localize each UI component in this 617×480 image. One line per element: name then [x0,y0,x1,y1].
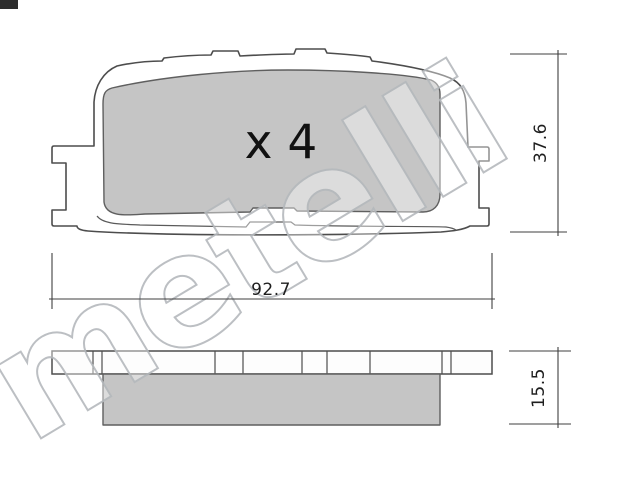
height-dimension-label: 37.6 [531,123,551,163]
corner-mark [0,0,18,9]
thickness-dimension: 15.5 [509,347,571,428]
thickness-dimension-label: 15.5 [529,368,549,408]
brake-pad-diagram: x 4 metelli 37.6 [0,0,617,480]
drawing-canvas: x 4 metelli 37.6 [0,0,617,480]
height-dimension: 37.6 [510,50,567,236]
width-dimension-label: 92.7 [251,280,291,300]
